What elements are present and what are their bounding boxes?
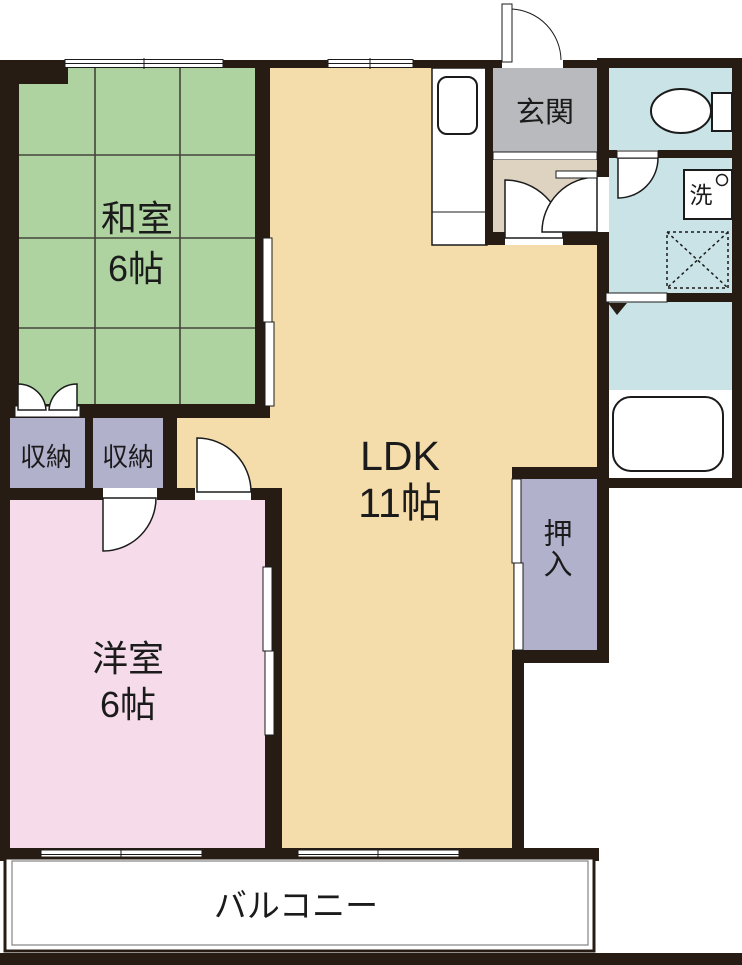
label-washitsu-size: 6帖: [108, 248, 164, 289]
label-ldk: LDK: [360, 433, 440, 479]
sliding-door-yoshitsu-ldk: [263, 567, 272, 651]
label-yoshitsu-size: 6帖: [100, 684, 156, 725]
label-balcony: バルコニー: [214, 887, 378, 924]
ground-line: [0, 953, 742, 965]
bathtub-icon: [613, 397, 723, 471]
sliding-door-oshiire: [512, 479, 521, 563]
window-washitsu-top: [65, 58, 223, 69]
label-shuno2: 収納: [102, 442, 154, 472]
label-ldk-size: 11帖: [358, 480, 442, 526]
label-genkan: 玄関: [516, 96, 574, 129]
kitchen-sink-icon: [438, 77, 477, 134]
floor-plan-canvas: 和室 6帖 LDK 11帖 玄関 収納 収納 洋室 6帖 洗 バルコニー: [0, 0, 742, 965]
sliding-door-washitsu-ldk: [263, 238, 272, 322]
label-washitsu: 和室: [101, 198, 173, 239]
label-yoshitsu: 洋室: [92, 638, 164, 679]
window-ldk-top: [328, 58, 413, 69]
label-washbasin: 洗: [690, 182, 713, 208]
floor-plan: 和室 6帖 LDK 11帖 玄関 収納 収納 洋室 6帖 洗 バルコニー 押入: [0, 0, 742, 965]
label-shuno1: 収納: [20, 442, 72, 472]
entrance-door-icon: [502, 4, 563, 68]
kitchen-counter-icon: [432, 68, 487, 245]
genkan-step: [493, 152, 597, 160]
toilet-icon: [651, 89, 732, 133]
label-oshiire: 押入: [540, 518, 576, 628]
